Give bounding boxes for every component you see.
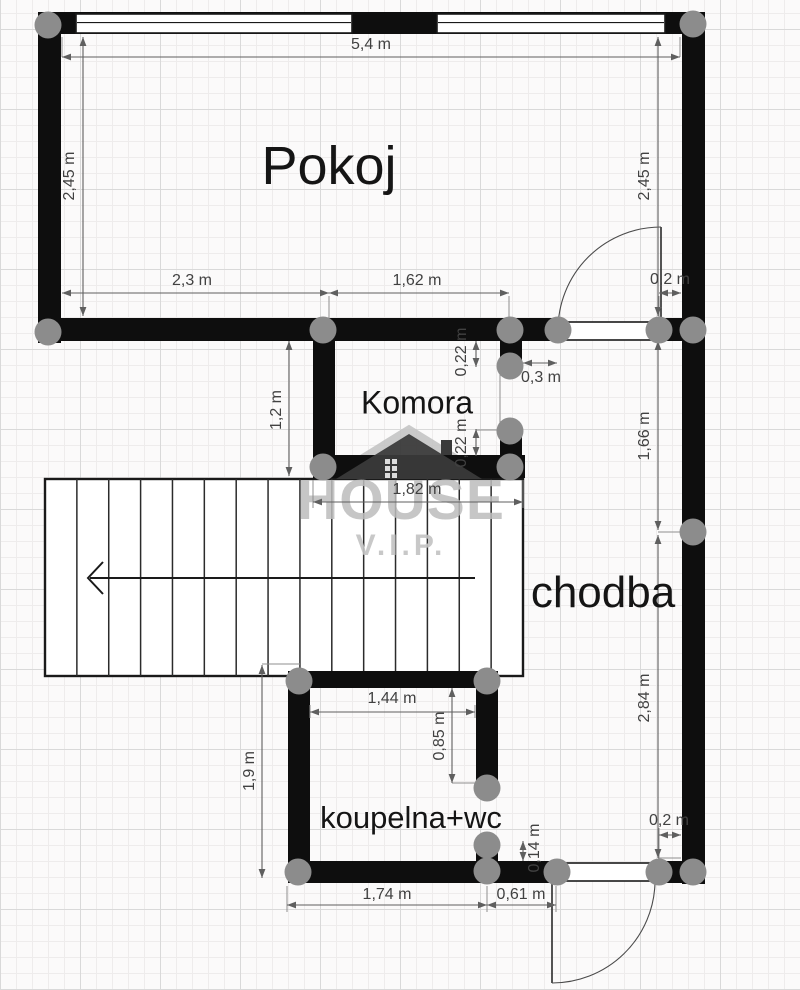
junction-dot: [35, 319, 62, 346]
junction-dot: [497, 317, 524, 344]
junction-dot: [680, 859, 707, 886]
house-chimney-icon: [441, 440, 452, 455]
dimension-line: [62, 54, 680, 61]
dimension-arrow: [671, 54, 680, 61]
junction-dot: [286, 668, 313, 695]
dimension-line: [659, 290, 681, 297]
dimension-arrow: [659, 832, 668, 839]
dimension-line: [655, 535, 662, 858]
plan-layer: [0, 0, 800, 990]
dimension-arrow: [313, 499, 322, 506]
junction-dot: [35, 12, 62, 39]
junction-dot: [680, 317, 707, 344]
dimension-arrow: [286, 467, 293, 476]
door-swing-arc: [552, 883, 655, 983]
dimension-arrow: [287, 902, 296, 909]
dimension-line: [520, 841, 527, 861]
junction-dot: [310, 454, 337, 481]
house-window-icon: [392, 466, 397, 471]
dimension-arrow: [80, 37, 87, 46]
junction-dot: [285, 859, 312, 886]
dimension-line: [473, 341, 480, 367]
wall: [682, 12, 705, 884]
junction-dot: [474, 832, 501, 859]
dimension-arrow: [466, 709, 475, 716]
window: [437, 14, 665, 33]
junction-dot: [474, 668, 501, 695]
dimension-arrow: [473, 447, 480, 456]
dimension-arrow: [449, 688, 456, 697]
dimension-line: [310, 709, 475, 716]
dimension-line: [259, 665, 266, 878]
dimension-line: [473, 429, 480, 456]
dimension-arrow: [500, 290, 509, 297]
house-window-icon: [392, 473, 397, 478]
dimension-arrow: [473, 341, 480, 350]
dimension-arrow: [259, 869, 266, 878]
dimension-line: [449, 688, 456, 783]
junction-dot: [545, 317, 572, 344]
dimension-arrow: [329, 290, 338, 297]
dimension-line: [523, 360, 557, 367]
junction-dot: [646, 859, 673, 886]
house-window-icon: [385, 459, 390, 464]
floorplan-canvas: HOUSE V.I.P. PokojKomorachodbakoupelna+w…: [0, 0, 800, 990]
dimension-line: [286, 341, 293, 476]
dimension-arrow: [655, 535, 662, 544]
door-swing-arc: [558, 227, 661, 330]
door: [552, 883, 655, 983]
dimension-arrow: [320, 290, 329, 297]
dimension-line: [62, 290, 329, 297]
house-window-icon: [392, 459, 397, 464]
dimension-arrow: [520, 841, 527, 850]
dimension-line: [80, 37, 87, 316]
dimension-arrow: [310, 709, 319, 716]
dimension-line: [487, 902, 556, 909]
dimension-line: [659, 832, 681, 839]
dimension-arrow: [62, 54, 71, 61]
wall: [38, 318, 558, 341]
dimension-arrow: [473, 358, 480, 367]
junction-dot: [310, 317, 337, 344]
wall: [288, 671, 498, 688]
dimension-arrow: [548, 360, 557, 367]
wall: [288, 671, 310, 883]
junction-dot: [646, 317, 673, 344]
wall: [38, 12, 61, 343]
junction-dot: [544, 859, 571, 886]
dimension-arrow: [655, 521, 662, 530]
window: [76, 14, 352, 33]
dimension-arrow: [672, 290, 681, 297]
junction-dot: [680, 11, 707, 38]
dimension-arrow: [449, 774, 456, 783]
door: [558, 227, 661, 330]
dimension-line: [655, 341, 662, 530]
dimension-arrow: [80, 307, 87, 316]
dimension-arrow: [655, 37, 662, 46]
dimension-arrow: [672, 832, 681, 839]
wall: [288, 861, 553, 883]
dimension-arrow: [478, 902, 487, 909]
dimension-line: [329, 290, 509, 297]
junction-dot: [497, 353, 524, 380]
dimension-arrow: [62, 290, 71, 297]
junction-dot: [680, 519, 707, 546]
dimension-arrow: [520, 852, 527, 861]
dimension-arrow: [259, 665, 266, 674]
dimension-line: [313, 499, 523, 506]
dimension-arrow: [523, 360, 532, 367]
dimension-line: [287, 902, 487, 909]
junction-dot: [497, 418, 524, 445]
junction-dot: [474, 775, 501, 802]
house-window-icon: [385, 473, 390, 478]
junction-dot: [497, 454, 524, 481]
dimension-arrow: [286, 341, 293, 350]
junction-dot: [474, 858, 501, 885]
dimension-arrow: [514, 499, 523, 506]
house-window-icon: [385, 466, 390, 471]
dimension-arrow: [487, 902, 496, 909]
dimension-arrow: [655, 849, 662, 858]
